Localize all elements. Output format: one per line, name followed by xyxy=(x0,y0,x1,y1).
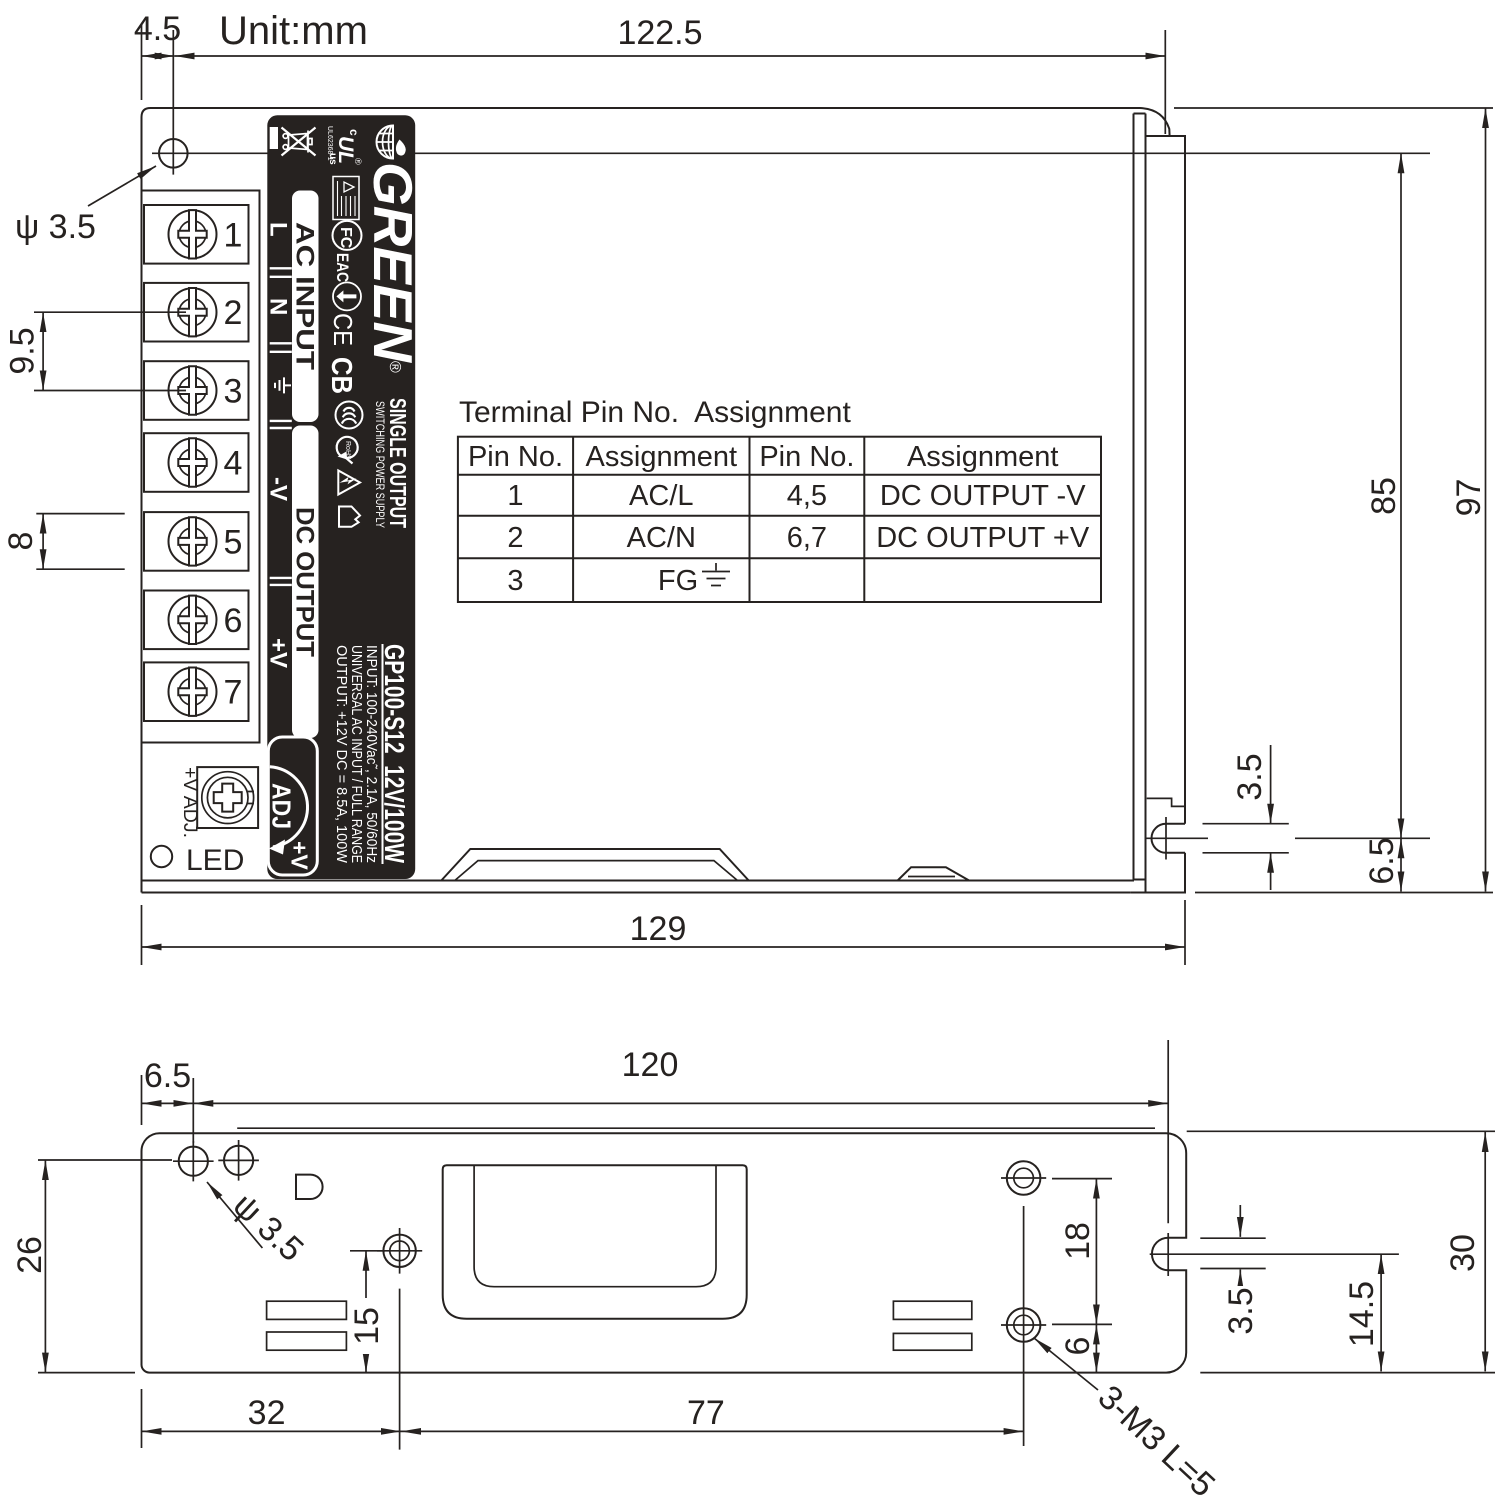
svg-text:N: N xyxy=(265,298,292,315)
svg-text:5: 5 xyxy=(224,523,243,561)
svg-text:-V: -V xyxy=(265,477,292,501)
svg-text:EAC: EAC xyxy=(333,253,352,282)
svg-text:85: 85 xyxy=(1365,477,1403,515)
svg-text:Assignment: Assignment xyxy=(907,441,1059,473)
svg-text:FC: FC xyxy=(337,227,354,249)
svg-text:GP100-S12 12V/100W: GP100-S12 12V/100W xyxy=(379,644,410,863)
svg-text:SINGLE OUTPUT: SINGLE OUTPUT xyxy=(385,398,411,528)
svg-text:6: 6 xyxy=(1059,1337,1097,1356)
svg-text:INPUT: 100-240Vac˜, 2.1A, 50/6: INPUT: 100-240Vac˜, 2.1A, 50/60Hz xyxy=(363,645,379,863)
svg-text:SWITCHING POWER SUPPLY: SWITCHING POWER SUPPLY xyxy=(373,401,385,528)
svg-text:L: L xyxy=(265,222,292,237)
svg-text:ADJ: ADJ xyxy=(267,783,297,829)
svg-text:RoHS: RoHS xyxy=(344,441,351,460)
svg-text:®: ® xyxy=(386,361,403,373)
svg-text:18: 18 xyxy=(1059,1222,1097,1260)
svg-text:FG: FG xyxy=(658,565,698,597)
svg-text:ψ 3.5: ψ 3.5 xyxy=(15,208,96,246)
svg-text:1: 1 xyxy=(507,480,523,512)
svg-text:UNIVERSAL AC INPUT / FULL RANG: UNIVERSAL AC INPUT / FULL RANGE xyxy=(348,645,364,863)
svg-text:14.5: 14.5 xyxy=(1343,1281,1381,1347)
svg-text:®: ® xyxy=(353,158,363,165)
svg-text:Pin No.: Pin No. xyxy=(468,441,563,473)
svg-text:120: 120 xyxy=(622,1046,679,1084)
svg-text:DC OUTPUT -V: DC OUTPUT -V xyxy=(880,480,1086,512)
svg-text:7: 7 xyxy=(224,674,243,712)
svg-text:77: 77 xyxy=(687,1394,725,1432)
svg-text:129: 129 xyxy=(630,910,687,948)
svg-text:UL62368-1: UL62368-1 xyxy=(326,126,333,161)
svg-text:Unit:mm: Unit:mm xyxy=(219,9,368,53)
svg-text:Assignment: Assignment xyxy=(586,441,738,473)
svg-text:1: 1 xyxy=(224,216,243,254)
svg-text:+V: +V xyxy=(265,638,292,668)
svg-text:15: 15 xyxy=(348,1307,386,1345)
svg-text:26: 26 xyxy=(11,1236,49,1274)
svg-text:3.5: 3.5 xyxy=(1231,753,1269,800)
svg-text:Terminal Pin No. Assignment: Terminal Pin No. Assignment xyxy=(459,396,851,429)
svg-text:OUTPUT: +12V DC = 8.5A, 100W: OUTPUT: +12V DC = 8.5A, 100W xyxy=(333,645,349,863)
svg-text:LED: LED xyxy=(186,844,244,877)
svg-text:6.5: 6.5 xyxy=(1363,837,1401,884)
svg-text:+V ADJ.: +V ADJ. xyxy=(179,767,201,838)
svg-text:CB: CB xyxy=(325,357,357,394)
svg-text:9.5: 9.5 xyxy=(4,327,42,374)
svg-text:AC/N: AC/N xyxy=(627,522,696,554)
svg-text:2: 2 xyxy=(507,522,523,554)
svg-text:6.5: 6.5 xyxy=(144,1057,191,1095)
svg-text:4,5: 4,5 xyxy=(787,480,827,512)
svg-text:+V: +V xyxy=(287,841,313,870)
svg-text:3.5: 3.5 xyxy=(1222,1287,1260,1334)
svg-text:97: 97 xyxy=(1450,479,1488,517)
svg-text:DC OUTPUT +V: DC OUTPUT +V xyxy=(876,522,1090,554)
svg-text:2: 2 xyxy=(224,294,243,332)
svg-text:AC INPUT: AC INPUT xyxy=(291,222,319,370)
svg-text:6: 6 xyxy=(224,602,243,640)
svg-text:AC/L: AC/L xyxy=(629,480,693,512)
svg-text:c: c xyxy=(347,129,361,136)
svg-text:32: 32 xyxy=(248,1394,286,1432)
svg-text:3: 3 xyxy=(507,565,523,597)
svg-text:Pin No.: Pin No. xyxy=(759,441,854,473)
svg-text:8: 8 xyxy=(2,532,40,551)
svg-text:3: 3 xyxy=(224,373,243,411)
svg-text:4: 4 xyxy=(224,445,243,483)
svg-text:CE: CE xyxy=(328,313,358,346)
svg-text:DC OUTPUT: DC OUTPUT xyxy=(291,507,319,657)
svg-text:GREEN: GREEN xyxy=(362,162,424,363)
svg-text:122.5: 122.5 xyxy=(617,14,702,52)
svg-text:30: 30 xyxy=(1444,1234,1482,1272)
svg-text:6,7: 6,7 xyxy=(787,522,827,554)
